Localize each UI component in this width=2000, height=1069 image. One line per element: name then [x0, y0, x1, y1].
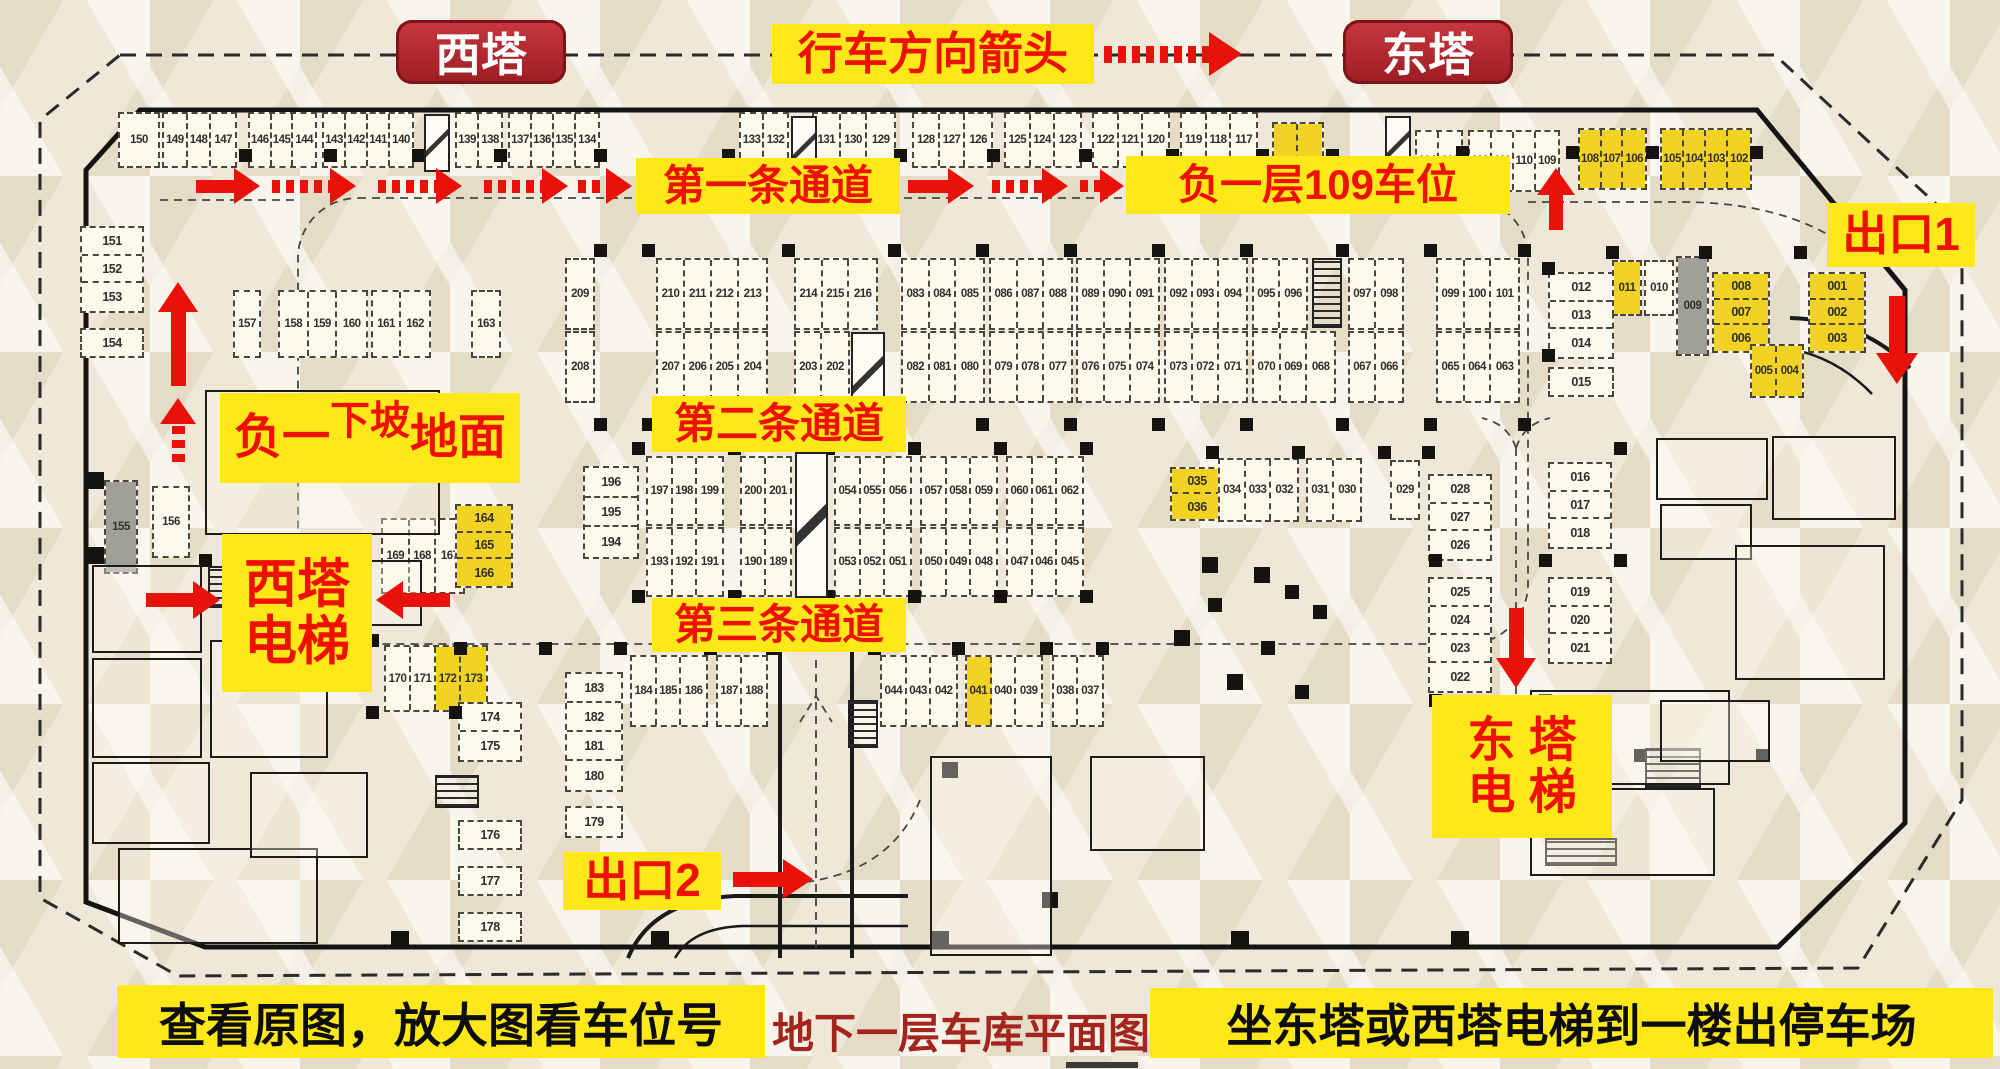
west-tower-elevator-label: 西塔电梯 — [222, 534, 372, 692]
aisle2-label: 第二条通道 — [652, 396, 906, 452]
ramp-to-ground-label: 负一 下坡 地面 — [220, 393, 520, 483]
ramp-down-text: 下坡 — [330, 400, 410, 443]
b1-109-stalls-label: 负一层109车位 — [1126, 156, 1510, 214]
ramp-b1-text: 负一 — [234, 412, 330, 464]
garage-floorplan: 1501491481471461451441431421411401391381… — [0, 0, 2000, 1069]
aisle1-label: 第一条通道 — [636, 158, 900, 214]
caption-underline — [1066, 1062, 1138, 1068]
caption-take-elevator: 坐东塔或西塔电梯到一楼出停车场 — [1150, 988, 1993, 1058]
ramp-ground-text: 地面 — [410, 412, 506, 464]
west-tower-label: 西塔 — [435, 19, 527, 85]
annotation-layer: 西塔 东塔 行车方向箭头 第一条通道 负一层109车位 出口1 第二条通道 第三… — [0, 0, 2000, 1069]
east-tower-elevator-label: 东 塔电 梯 — [1432, 695, 1612, 838]
caption-plan-title: 地下一层车库平面图 — [772, 1000, 1150, 1061]
direction-legend-label: 行车方向箭头 — [772, 24, 1094, 84]
caption-view-original: 查看原图，放大图看车位号 — [117, 985, 765, 1058]
west-tower-badge: 西塔 — [396, 20, 566, 84]
east-tower-label: 东塔 — [1382, 19, 1474, 85]
exit1-label: 出口1 — [1827, 203, 1975, 267]
exit2-label: 出口2 — [563, 852, 721, 910]
east-tower-badge: 东塔 — [1343, 20, 1513, 84]
aisle3-label: 第三条通道 — [652, 598, 906, 652]
